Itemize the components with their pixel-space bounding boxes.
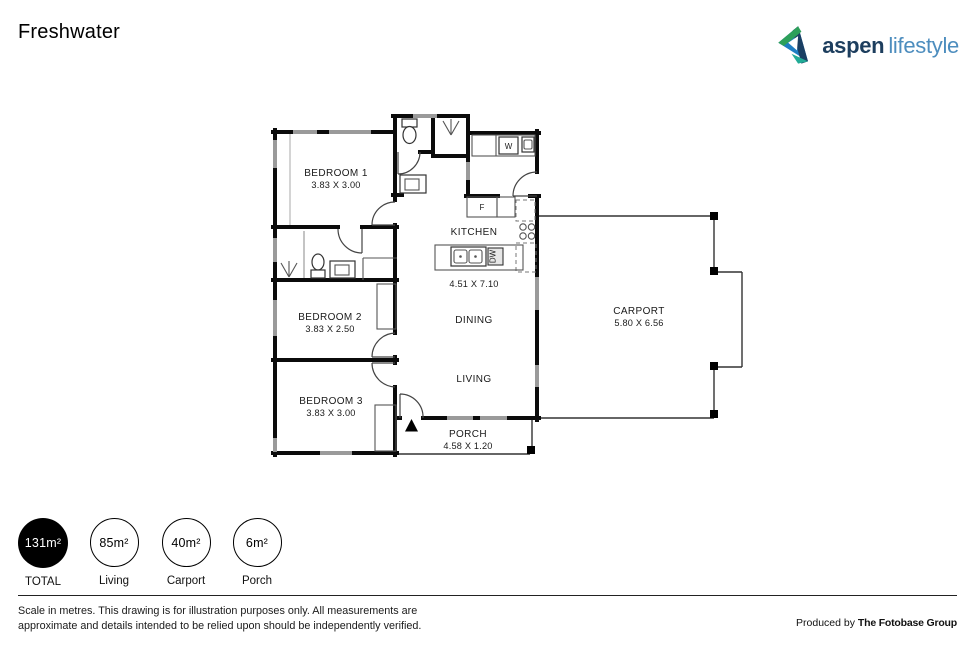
area-circle-living: 85m² <box>90 518 139 567</box>
produced-by-prefix: Produced by <box>796 617 855 629</box>
fridge-label: F <box>480 203 485 212</box>
washer-label: W <box>505 142 513 151</box>
cooktop-icon <box>520 224 535 239</box>
room-label-kitchen: KITCHEN <box>451 227 498 238</box>
bathroom-fixtures <box>281 231 355 278</box>
disclaimer-line-2: approximate and details intended to be r… <box>18 619 421 634</box>
entry-marker-icon <box>405 419 418 432</box>
room-dims-bedroom2: 3.83 X 2.50 <box>305 324 354 334</box>
disclaimer-line-1: Scale in metres. This drawing is for ill… <box>18 604 421 619</box>
producer-name: The Fotobase Group <box>858 617 957 629</box>
area-circle-porch: 6m² <box>233 518 282 567</box>
toilet-icon <box>312 254 324 270</box>
legend-item-carport: 40m² Carport <box>151 518 221 587</box>
area-value: 85m² <box>99 536 128 550</box>
area-label: TOTAL <box>25 576 61 588</box>
room-dims-bedroom1: 3.83 X 3.00 <box>311 180 360 190</box>
disclaimer-text: Scale in metres. This drawing is for ill… <box>18 604 421 635</box>
room-dims-bedroom3: 3.83 X 3.00 <box>306 408 355 418</box>
footer-divider <box>18 595 957 596</box>
shower-icon <box>281 261 297 277</box>
island-bench: DW <box>435 245 523 270</box>
area-label: Living <box>99 575 129 587</box>
legend-item-porch: 6m² Porch <box>222 518 292 587</box>
room-dims-carport: 5.80 X 6.56 <box>614 318 663 328</box>
area-value: 6m² <box>246 536 268 550</box>
room-label-carport: CARPORT <box>613 306 665 317</box>
room-label-bedroom2: BEDROOM 2 <box>298 312 362 323</box>
area-value: 131m² <box>25 536 61 550</box>
page: Freshwater aspen lifestyle <box>0 0 975 650</box>
room-label-living: LIVING <box>456 374 491 385</box>
room-dims-openplan: 4.51 X 7.10 <box>449 279 498 289</box>
room-label-porch: PORCH <box>449 429 487 440</box>
legend-item-total: 131m² TOTAL <box>8 518 78 588</box>
room-label-bedroom1: BEDROOM 1 <box>304 168 368 179</box>
vanity-hall <box>400 175 426 193</box>
shower-icon <box>443 119 459 135</box>
area-value: 40m² <box>171 536 200 550</box>
room-label-dining: DINING <box>455 315 492 326</box>
area-label: Carport <box>167 575 205 587</box>
dishwasher-label: DW <box>489 249 498 263</box>
laundry-bench: W <box>472 135 535 156</box>
room-dims-porch: 4.58 X 1.20 <box>443 441 492 451</box>
toilet-icon <box>402 119 417 144</box>
room-label-bedroom3: BEDROOM 3 <box>299 396 363 407</box>
area-circle-carport: 40m² <box>162 518 211 567</box>
area-circle-total: 131m² <box>18 518 68 568</box>
produced-by: Produced by The Fotobase Group <box>796 617 957 629</box>
legend-item-living: 85m² Living <box>79 518 149 587</box>
area-label: Porch <box>242 575 272 587</box>
doors <box>338 152 537 418</box>
